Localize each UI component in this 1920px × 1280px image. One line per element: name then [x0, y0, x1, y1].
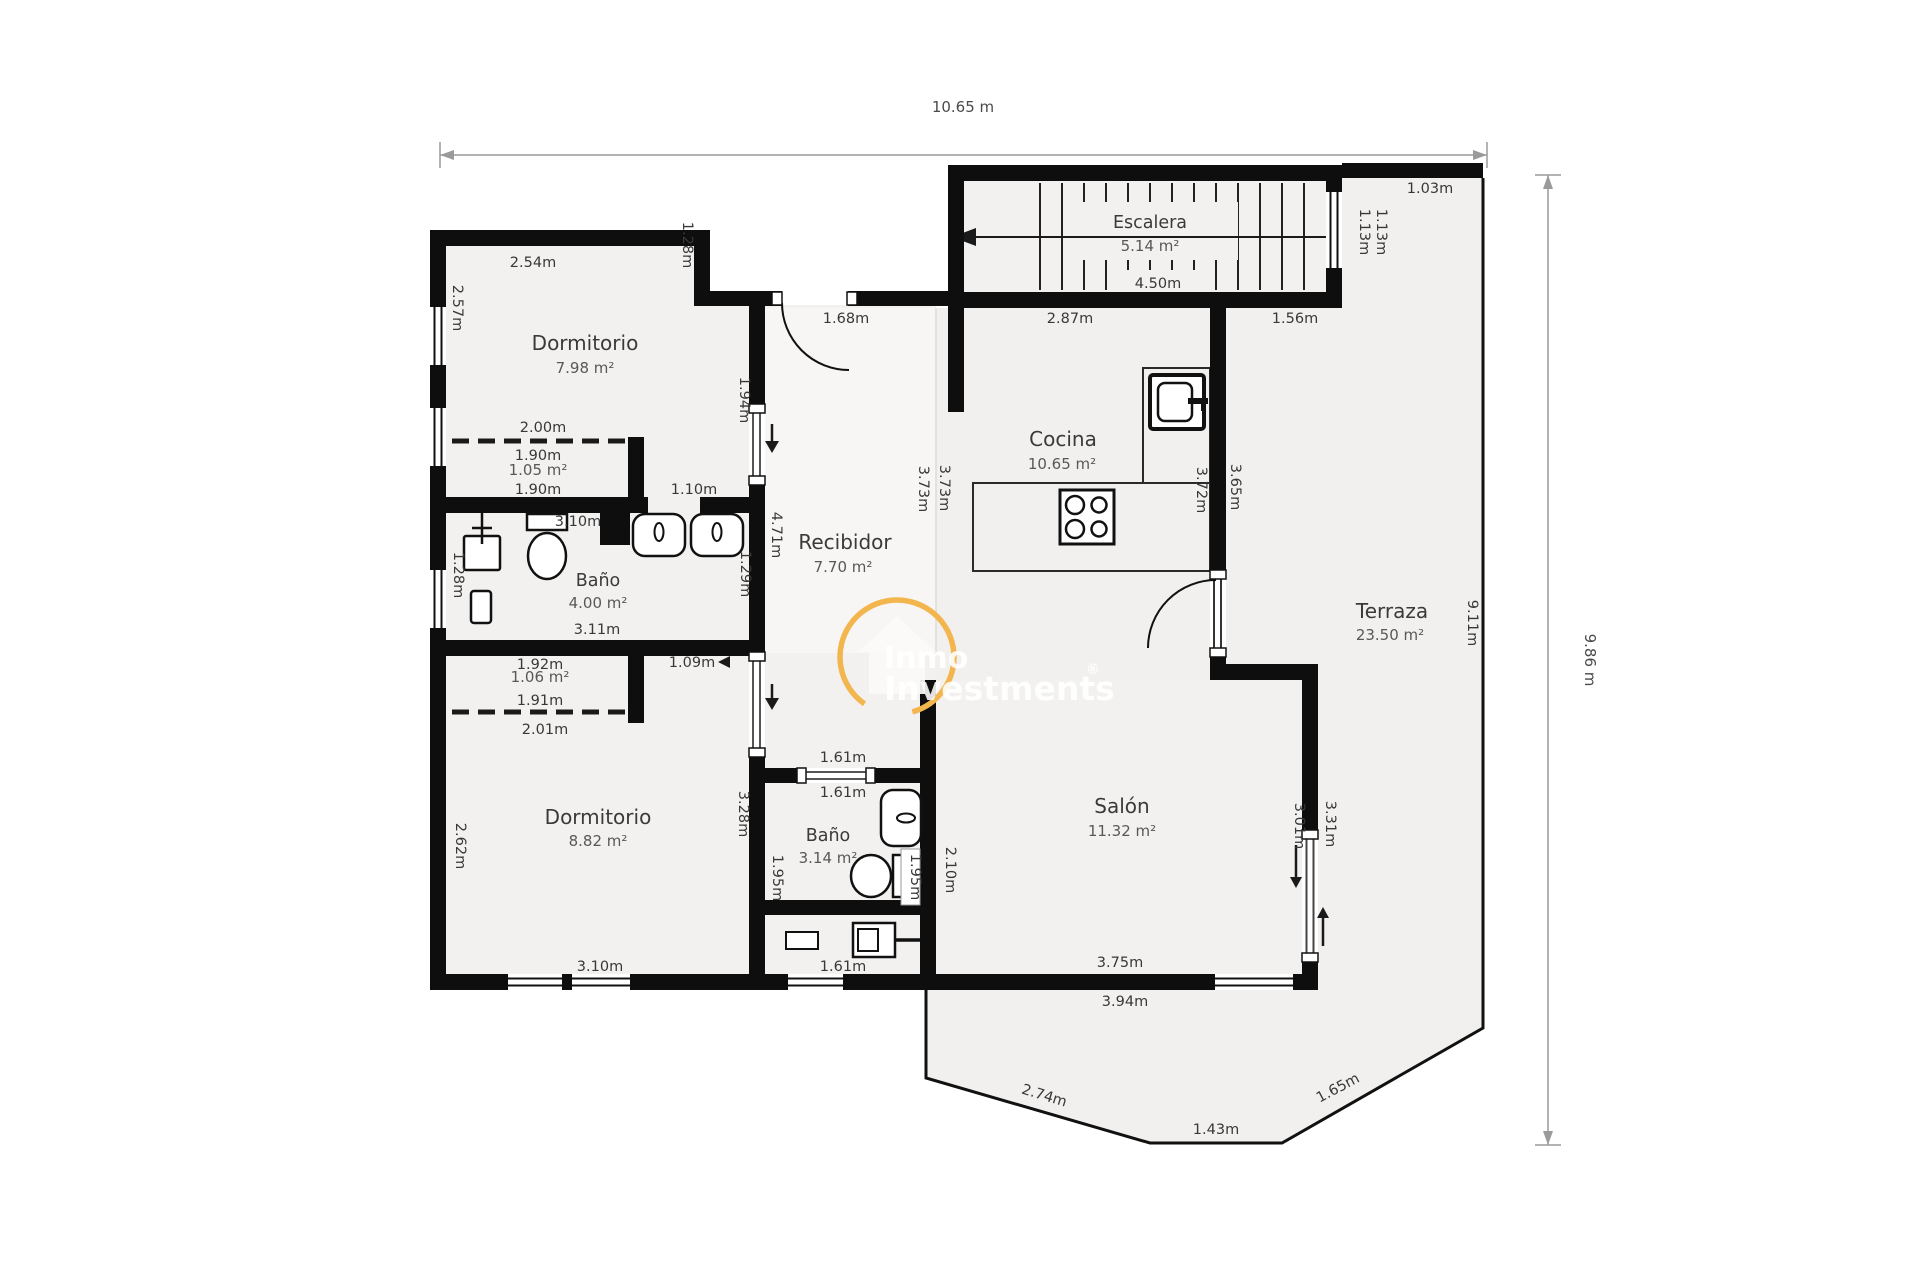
measure-3-65: 3.65m [1227, 464, 1243, 510]
measure-2-87: 2.87m [1047, 311, 1093, 327]
room-name-recibidor: Recibidor [798, 530, 892, 554]
window-dorm1-b [430, 408, 446, 466]
measure-1-68: 1.68m [823, 311, 869, 327]
room-area-recibidor: 7.70 m² [814, 558, 873, 576]
measure-1-28-a: 1.28m [679, 222, 695, 268]
salon-sliding-door [1302, 830, 1318, 962]
measure-1-43: 1.43m [1193, 1122, 1239, 1138]
dorm2-pocket-door [749, 652, 765, 757]
measure-1-61-c: 1.61m [820, 959, 866, 975]
measure-1-90-a: 1.90m [515, 448, 561, 464]
measure-3-11: 3.11m [574, 622, 620, 638]
fridge-icon [1150, 375, 1208, 429]
watermark-registered: ® [1086, 662, 1100, 678]
measure-1-28-b: 1.28m [450, 552, 466, 598]
measure-1-13-a: 1.13m [1356, 209, 1372, 255]
measure-1-95-b: 1.95m [907, 854, 923, 900]
measure-3-10-b: 3.10m [577, 959, 623, 975]
floorplan-canvas: Dormitorio 7.98 m² Baño 4.00 m² 1.05 m² … [0, 0, 1920, 1280]
room-name-bano1: Baño [576, 571, 621, 591]
measure-2-00: 2.00m [520, 420, 566, 436]
measure-2-01: 2.01m [522, 722, 568, 738]
measure-3-28: 3.28m [735, 791, 751, 837]
measure-1-61-b: 1.61m [820, 785, 866, 801]
watermark-brand-bottom: Investments [884, 669, 1115, 708]
bano2-sliding-door [797, 768, 875, 783]
measure-1-94: 1.94m [736, 377, 752, 423]
floorplan-page: Dormitorio 7.98 m² Baño 4.00 m² 1.05 m² … [0, 0, 1920, 1280]
dimension-right [1535, 175, 1561, 1145]
stove-icon [1060, 490, 1114, 544]
measure-3-73-a: 3.73m [915, 466, 931, 512]
measure-3-73-b: 3.73m [936, 465, 952, 511]
room-area-dormitorio1: 7.98 m² [556, 359, 615, 377]
room-name-escalera: Escalera [1113, 213, 1187, 233]
window-utility [788, 974, 843, 990]
room-name-salon: Salón [1094, 794, 1149, 818]
measure-2-54: 2.54m [510, 255, 556, 271]
window-bano1 [430, 570, 446, 628]
sink-icon-bano1-left [633, 514, 685, 556]
room-area-cocina: 10.65 m² [1028, 455, 1096, 473]
room-area-bano2: 3.14 m² [799, 849, 858, 867]
measure-4-71: 4.71m [768, 512, 784, 558]
room-area-terraza: 23.50 m² [1356, 626, 1424, 644]
room-area-dormitorio2: 8.82 m² [569, 832, 628, 850]
dimension-top [440, 142, 1487, 168]
window-dorm1-a [430, 307, 446, 365]
measure-1-13-b: 1.13m [1373, 209, 1389, 255]
measure-3-94: 3.94m [1102, 994, 1148, 1010]
sink-icon-bano2 [881, 790, 921, 846]
vent-icon [786, 932, 818, 949]
measure-1-92: 1.92m [517, 657, 563, 673]
measure-1-95-a: 1.95m [769, 855, 785, 901]
measure-1-03: 1.03m [1407, 181, 1453, 197]
measure-1-09: 1.09m [669, 655, 715, 671]
measure-1-10: 1.10m [671, 482, 717, 498]
room-name-dormitorio1: Dormitorio [532, 331, 639, 355]
measure-1-29: 1.29m [737, 551, 753, 597]
measure-3-01: 3.01m [1291, 803, 1307, 849]
room-area-salon: 11.32 m² [1088, 822, 1156, 840]
toilet-icon-bano2 [851, 855, 909, 897]
measure-3-10-a: 3.10m [555, 514, 601, 530]
dimension-top-label: 10.65 m [932, 98, 994, 116]
measure-2-57: 2.57m [449, 285, 465, 331]
window-escalera [1326, 192, 1342, 268]
sink-icon-bano1-right [691, 514, 743, 556]
measure-9-11: 9.11m [1464, 600, 1480, 646]
measure-2-10: 2.10m [942, 847, 958, 893]
bidet-icon [471, 591, 491, 623]
dimension-right-label: 9.86 m [1581, 634, 1599, 687]
measure-1-61-a: 1.61m [820, 750, 866, 766]
measure-3-75: 3.75m [1097, 955, 1143, 971]
room-name-dormitorio2: Dormitorio [545, 805, 652, 829]
room-name-cocina: Cocina [1029, 427, 1097, 451]
room-area-escalera: 5.14 m² [1121, 237, 1180, 255]
room-name-bano2: Baño [806, 826, 851, 846]
measure-2-62: 2.62m [452, 823, 468, 869]
room-name-terraza: Terraza [1355, 599, 1428, 623]
window-dorm2 [508, 974, 630, 990]
measure-3-72: 3.72m [1193, 467, 1209, 513]
measure-1-91: 1.91m [517, 693, 563, 709]
room-area-bano1: 4.00 m² [569, 594, 628, 612]
measure-1-56: 1.56m [1272, 311, 1318, 327]
measure-4-50: 4.50m [1135, 276, 1181, 292]
measure-3-31: 3.31m [1322, 801, 1338, 847]
measure-1-90-b: 1.90m [515, 482, 561, 498]
window-salon [1215, 974, 1293, 990]
